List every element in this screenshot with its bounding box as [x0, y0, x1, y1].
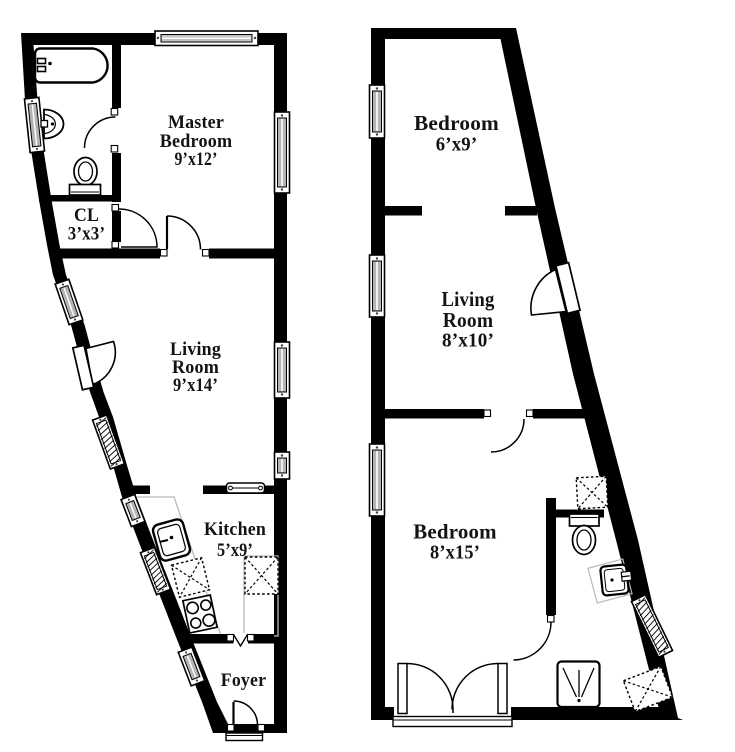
svg-text:6’x9’: 6’x9’ — [436, 135, 478, 156]
svg-text:Room: Room — [443, 308, 494, 332]
svg-text:8’x10’: 8’x10’ — [442, 331, 494, 352]
svg-text:3’x3’: 3’x3’ — [68, 225, 106, 245]
svg-text:Kitchen: Kitchen — [204, 520, 266, 540]
svg-text:CL: CL — [74, 206, 99, 226]
svg-text:Living: Living — [170, 340, 222, 360]
svg-text:Bedroom: Bedroom — [413, 520, 497, 544]
svg-text:Foyer: Foyer — [221, 671, 267, 691]
svg-text:Master: Master — [168, 113, 224, 133]
svg-text:Room: Room — [172, 358, 219, 378]
svg-text:8’x15’: 8’x15’ — [430, 543, 480, 564]
svg-text:9’x12’: 9’x12’ — [175, 150, 218, 170]
svg-text:5’x9’: 5’x9’ — [217, 541, 253, 561]
svg-text:9’x14’: 9’x14’ — [173, 376, 218, 396]
svg-text:Bedroom: Bedroom — [160, 132, 233, 152]
svg-text:Bedroom: Bedroom — [414, 111, 499, 135]
